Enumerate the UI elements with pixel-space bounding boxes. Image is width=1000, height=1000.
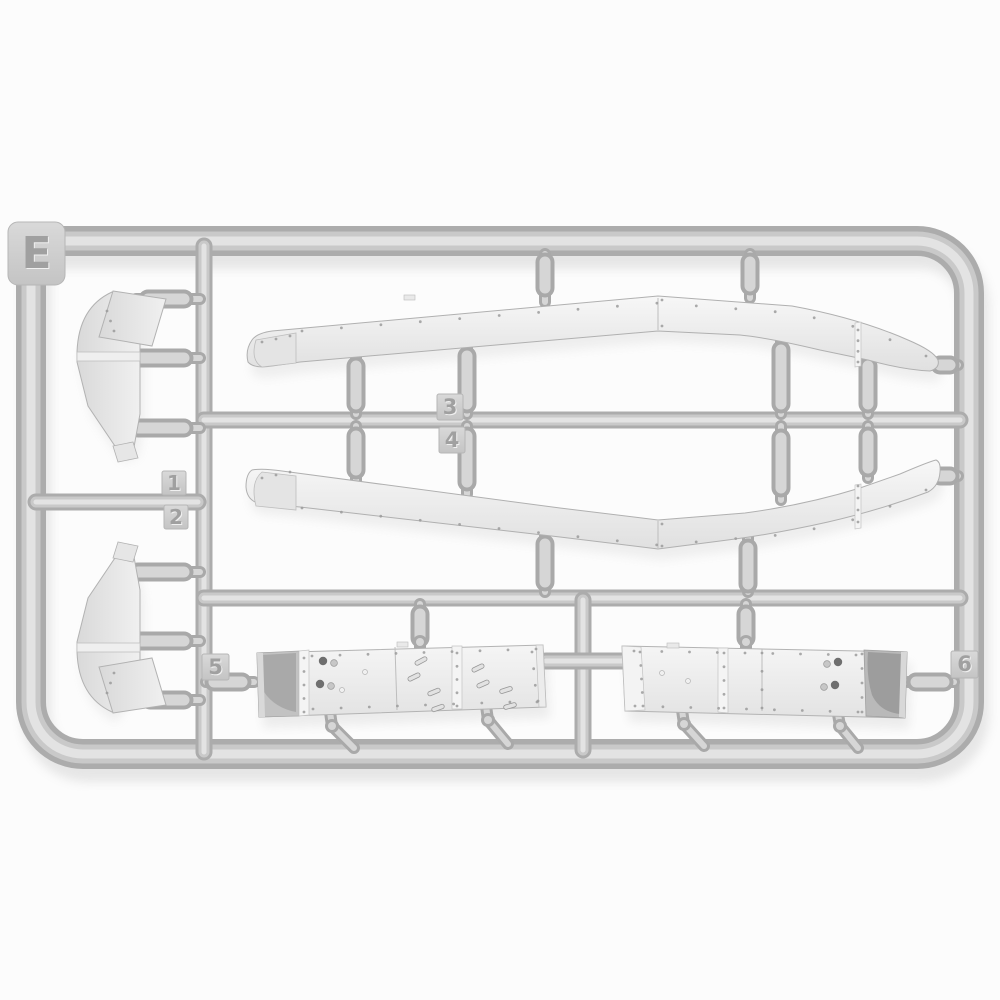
- part-tag-3: 3 3: [437, 394, 463, 420]
- part-tag-4: 4 4: [439, 427, 465, 453]
- part-5-hull-panel: [257, 642, 546, 717]
- panel-tab: [397, 642, 408, 647]
- fender-seam-band: [77, 352, 140, 361]
- panel-rivet-strip: [452, 646, 462, 709]
- sprue-scene: E E 1 1 2 2 3 3 4 4 5 5 6: [0, 0, 1000, 1000]
- part-tag-6: 6 6: [951, 651, 978, 678]
- circle-detail: [660, 671, 665, 676]
- part-number-6: 6: [957, 652, 972, 676]
- bolt-detail: [834, 658, 842, 666]
- washer-detail: [328, 683, 335, 690]
- part-tag-1: 1 1: [162, 471, 186, 496]
- sprue-letter: E: [21, 228, 51, 279]
- part-tag-2: 2 2: [164, 505, 188, 530]
- bolt-detail: [831, 681, 839, 689]
- sprue-photo: E E 1 1 2 2 3 3 4 4 5 5 6: [0, 0, 1000, 1000]
- circle-detail: [363, 670, 368, 675]
- part-number-3: 3: [443, 395, 458, 419]
- part-number-1: 1: [167, 471, 181, 495]
- bolt-detail: [319, 657, 327, 665]
- circle-detail: [686, 679, 691, 684]
- part-number-5: 5: [208, 655, 223, 679]
- part-tag-5: 5 5: [202, 654, 229, 680]
- fender-foot-tab: [113, 542, 138, 562]
- skirt-tab: [404, 295, 415, 300]
- part-6-hull-panel: [622, 643, 907, 718]
- sprue-letter-tag: E E: [8, 222, 65, 285]
- washer-detail: [821, 684, 828, 691]
- part-number-2: 2: [169, 505, 183, 529]
- circle-detail: [340, 688, 345, 693]
- fender-seam-band: [77, 643, 140, 652]
- panel-tab: [667, 643, 679, 648]
- bolt-detail: [316, 680, 324, 688]
- washer-detail: [331, 660, 338, 667]
- washer-detail: [824, 661, 831, 668]
- fender-foot-tab: [113, 442, 138, 462]
- skirt-gusset: [254, 472, 296, 510]
- panel-rivet-strip: [299, 650, 309, 716]
- part-number-4: 4: [445, 428, 460, 452]
